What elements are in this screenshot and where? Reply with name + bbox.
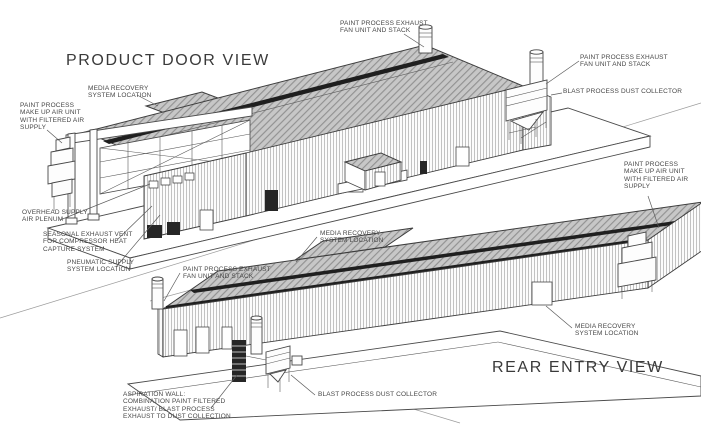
label-blast-dust-collector-top: BLAST PROCESS DUST COLLECTOR: [563, 88, 682, 95]
label-pneumatic-supply: PNEUMATIC SUPPLY SYSTEM LOCATION: [67, 259, 134, 274]
left-exhaust-stack-rear: [152, 277, 163, 309]
title-product-door-view: PRODUCT DOOR VIEW: [66, 52, 270, 70]
drawing-canvas: PRODUCT DOOR VIEW REAR ENTRY VIEW PAINT …: [0, 0, 701, 425]
label-aspiration-wall: ASPIRATION WALL: COMBINATION PAINT FILTE…: [123, 391, 231, 420]
title-rear-entry-view: REAR ENTRY VIEW: [492, 359, 664, 377]
label-make-up-air-left: PAINT PROCESS MAKE UP AIR UNIT WITH FILT…: [20, 102, 84, 131]
label-media-recovery-rear-right: MEDIA RECOVERY SYSTEM LOCATION: [575, 323, 639, 338]
aspiration-wall-tower: [232, 340, 246, 382]
label-exhaust-fan-stack-top: PAINT PROCESS EXHAUST FAN UNIT AND STACK: [340, 20, 428, 35]
mid-exhaust-stack-rear: [251, 316, 262, 354]
label-media-recovery-top: MEDIA RECOVERY SYSTEM LOCATION: [88, 85, 152, 100]
label-exhaust-fan-stack-rear: PAINT PROCESS EXHAUST FAN UNIT AND STACK: [183, 266, 271, 281]
label-blast-dust-collector-rear: BLAST PROCESS DUST COLLECTOR: [318, 391, 437, 398]
label-seasonal-exhaust-vent: SEASONAL EXHAUST VENT FOR COMPRESSOR HEA…: [43, 231, 132, 253]
label-make-up-air-rear: PAINT PROCESS MAKE UP AIR UNIT WITH FILT…: [624, 161, 688, 190]
label-overhead-supply-plenum: OVERHEAD SUPPLY AIR PLENUM: [22, 209, 88, 224]
label-exhaust-fan-stack-right: PAINT PROCESS EXHAUST FAN UNIT AND STACK: [580, 54, 668, 69]
label-media-recovery-rear-left: MEDIA RECOVERY SYSTEM LOCATION: [320, 230, 384, 245]
